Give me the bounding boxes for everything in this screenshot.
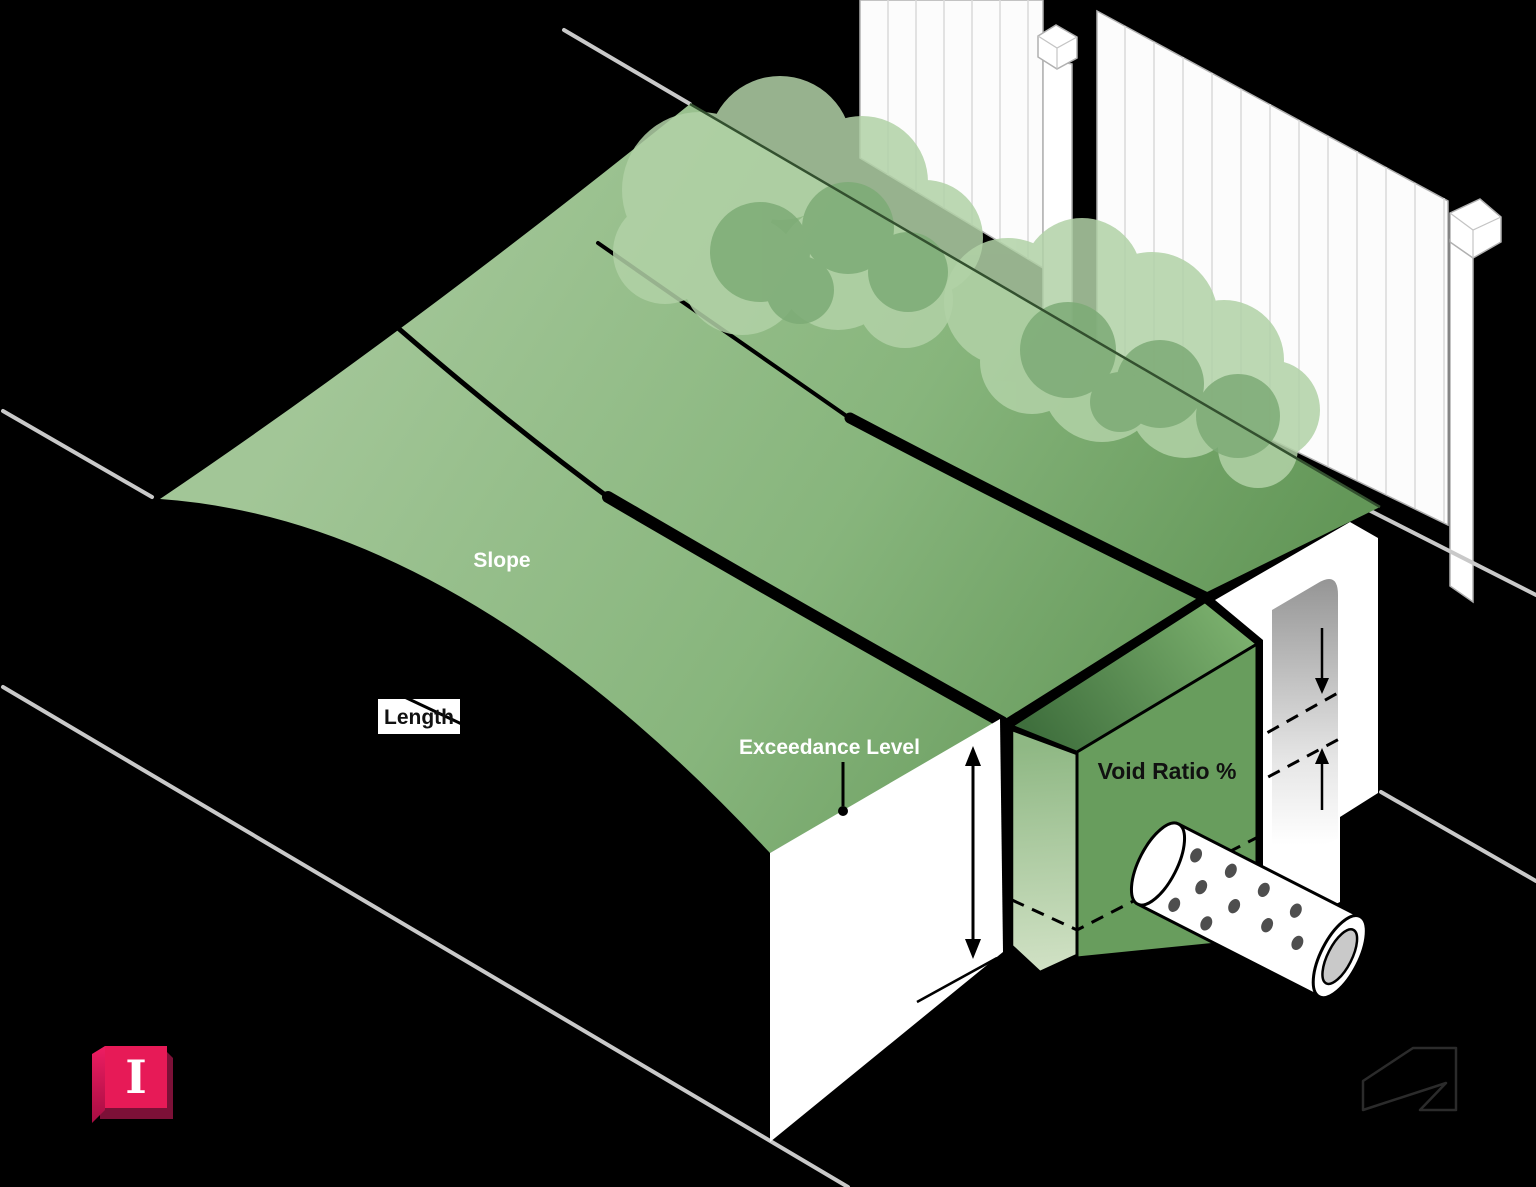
diagram-page: Exceedance Level Void Ratio % bbox=[0, 0, 1536, 1187]
extension-line-bottom-right bbox=[1381, 792, 1536, 881]
exceedance-leader-dot bbox=[838, 806, 848, 816]
length-label: Length bbox=[384, 706, 454, 729]
infodrainage-logo-spine bbox=[92, 1046, 105, 1123]
fence-post-right bbox=[1450, 199, 1501, 602]
extension-line-crest bbox=[564, 30, 690, 104]
slope-label: Slope bbox=[473, 549, 530, 572]
exceedance-label: Exceedance Level bbox=[739, 736, 920, 759]
length-annotation: Length bbox=[378, 693, 468, 734]
void-ratio-label: Void Ratio % bbox=[1098, 758, 1237, 784]
autodesk-logo bbox=[1363, 1048, 1456, 1110]
infodrainage-logo-letter: I bbox=[125, 1050, 147, 1104]
infodrainage-logo: I bbox=[92, 1046, 173, 1123]
extension-line-left-tip bbox=[3, 411, 152, 497]
channel-shading bbox=[1272, 579, 1338, 876]
trench-block-front bbox=[1012, 730, 1077, 972]
diagram-canvas: Exceedance Level Void Ratio % bbox=[0, 0, 1536, 1187]
